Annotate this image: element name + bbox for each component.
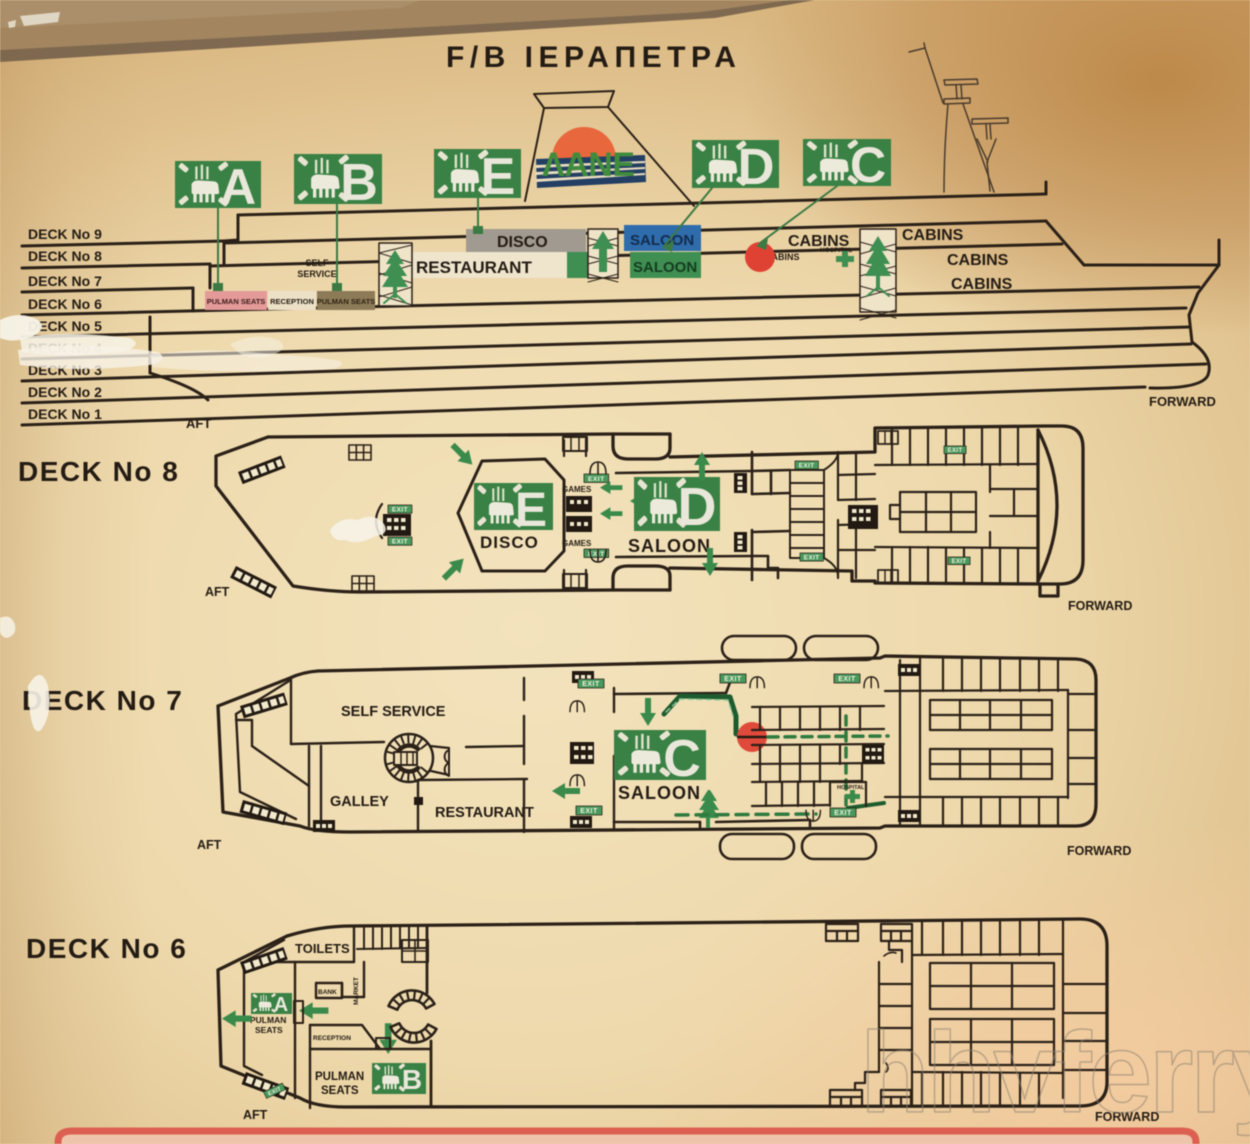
svg-text:DECK No 7: DECK No 7 xyxy=(28,273,102,289)
svg-text:C: C xyxy=(850,137,886,193)
svg-text:DISCO: DISCO xyxy=(480,533,539,552)
svg-text:A: A xyxy=(220,159,256,215)
svg-text:DECK No 1: DECK No 1 xyxy=(28,406,102,422)
svg-text:SALOON: SALOON xyxy=(628,536,711,556)
svg-text:FORWARD: FORWARD xyxy=(1068,599,1132,613)
svg-text:RECEPTION: RECEPTION xyxy=(270,297,314,306)
svg-text:AFT: AFT xyxy=(205,585,230,599)
svg-text:ΛΑΝΕ: ΛΑΝΕ xyxy=(542,146,637,184)
svg-text:DECK No 6: DECK No 6 xyxy=(26,933,187,964)
svg-text:SALOON: SALOON xyxy=(618,783,701,803)
svg-text:RECEPTION: RECEPTION xyxy=(313,1035,351,1042)
svg-text:DECK No 9: DECK No 9 xyxy=(28,226,102,242)
svg-text:SEATS: SEATS xyxy=(255,1025,283,1035)
svg-text:FORWARD: FORWARD xyxy=(1149,394,1216,409)
svg-text:B: B xyxy=(340,154,378,212)
svg-text:A: A xyxy=(274,994,288,1016)
svg-text:E: E xyxy=(481,148,516,206)
svg-text:C: C xyxy=(663,730,701,788)
svg-text:SALOON: SALOON xyxy=(630,232,694,249)
svg-text:BANK: BANK xyxy=(318,989,337,996)
svg-text:hhvferry: hhvferry xyxy=(860,1010,1250,1137)
svg-text:F/B ΙΕΡΑΠΕΤΡΑ: F/B ΙΕΡΑΠΕΤΡΑ xyxy=(446,41,741,74)
svg-text:PULMAN SEATS: PULMAN SEATS xyxy=(207,297,266,306)
svg-text:GAMES: GAMES xyxy=(562,539,592,548)
svg-text:TOILETS: TOILETS xyxy=(295,941,350,956)
svg-text:RESTAURANT: RESTAURANT xyxy=(435,805,534,821)
svg-text:MARKET: MARKET xyxy=(353,977,360,1005)
svg-text:AFT: AFT xyxy=(197,838,222,852)
svg-text:DISCO: DISCO xyxy=(497,234,548,251)
svg-text:DECK No 2: DECK No 2 xyxy=(28,384,102,400)
svg-text:GALLEY: GALLEY xyxy=(330,794,389,810)
svg-text:DECK No 8: DECK No 8 xyxy=(28,248,102,264)
svg-text:FORWARD: FORWARD xyxy=(1067,844,1131,858)
svg-text:RESTAURANT: RESTAURANT xyxy=(416,258,532,277)
svg-text:GAMES: GAMES xyxy=(562,485,592,494)
svg-text:PULMAN: PULMAN xyxy=(315,1071,364,1083)
svg-text:SALOON: SALOON xyxy=(633,259,697,276)
svg-text:D: D xyxy=(738,138,775,195)
svg-text:CABINS: CABINS xyxy=(902,227,964,244)
svg-text:CABINS: CABINS xyxy=(951,276,1013,293)
svg-text:DECK No 8: DECK No 8 xyxy=(18,456,179,487)
svg-text:AFT: AFT xyxy=(243,1108,268,1122)
svg-text:PULMAN SEATS: PULMAN SEATS xyxy=(317,297,376,306)
svg-text:SERVICE: SERVICE xyxy=(297,269,336,279)
svg-text:B: B xyxy=(402,1064,422,1095)
svg-text:E: E xyxy=(515,484,547,537)
svg-text:PULMAN: PULMAN xyxy=(250,1015,286,1025)
svg-text:AFT: AFT xyxy=(186,416,211,431)
svg-text:DECK No 6: DECK No 6 xyxy=(28,296,102,312)
svg-text:CABINS: CABINS xyxy=(947,252,1009,269)
svg-text:SEATS: SEATS xyxy=(321,1085,359,1097)
svg-text:D: D xyxy=(678,477,717,537)
svg-text:SELF: SELF xyxy=(305,258,329,268)
svg-text:SELF SERVICE: SELF SERVICE xyxy=(341,704,446,720)
